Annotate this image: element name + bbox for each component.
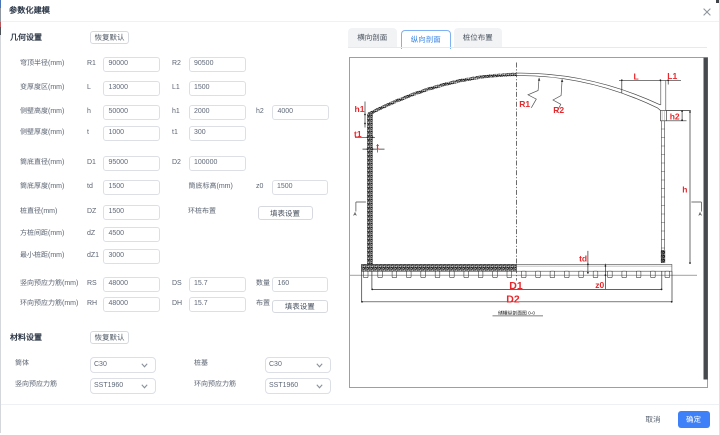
svg-text:L: L [633, 70, 638, 82]
svg-text:L1: L1 [667, 69, 677, 81]
svg-text:h2: h2 [669, 110, 679, 122]
svg-text:td: td [579, 252, 587, 264]
svg-text:h: h [682, 183, 687, 195]
svg-text:A: A [353, 210, 357, 217]
svg-text:A: A [698, 210, 702, 217]
svg-text:R1: R1 [519, 98, 530, 110]
svg-text:h1: h1 [354, 102, 364, 114]
svg-text:R2: R2 [553, 103, 564, 115]
svg-text:D2: D2 [506, 291, 520, 306]
svg-text:t1: t1 [354, 127, 362, 139]
svg-text:z0: z0 [595, 279, 604, 291]
